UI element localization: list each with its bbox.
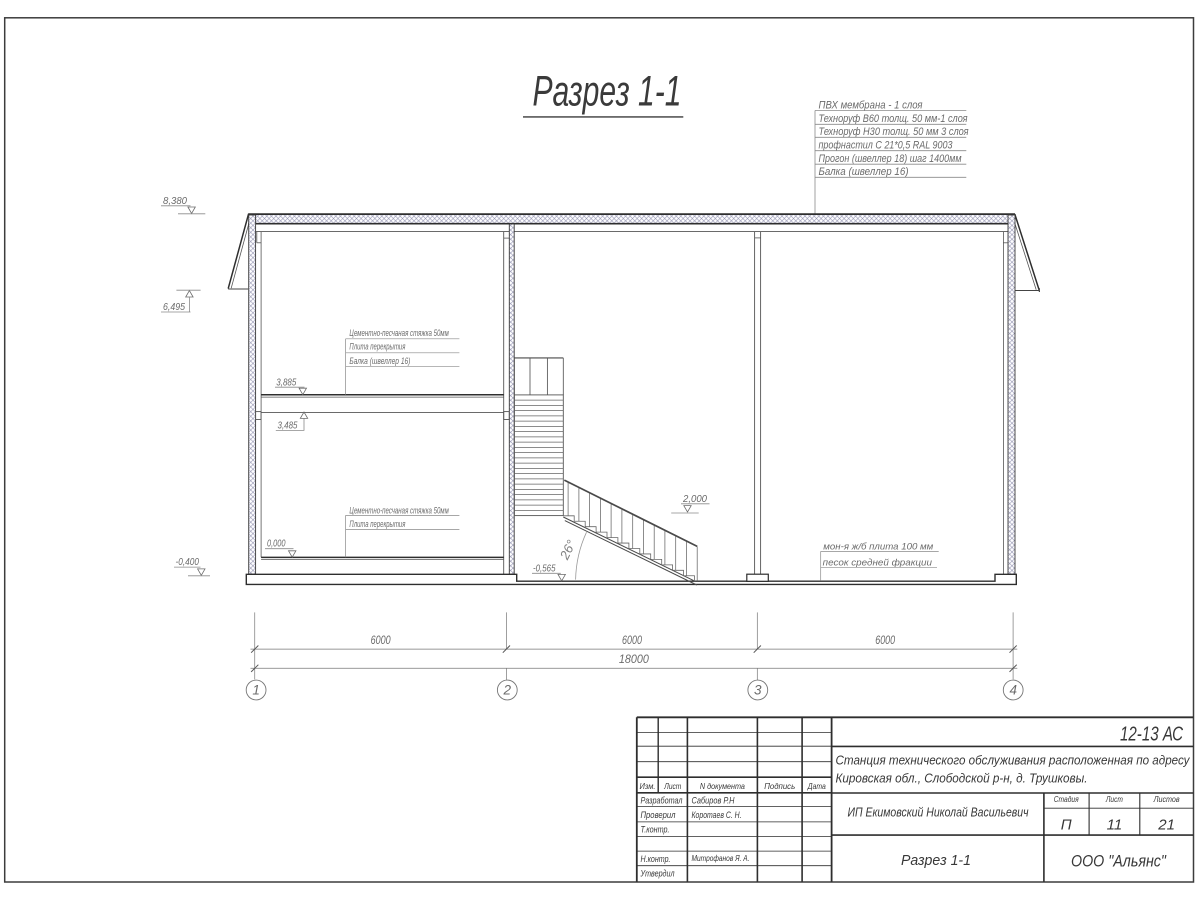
svg-text:Балка (швеллер 16): Балка (швеллер 16) [349,356,410,367]
svg-text:Цементно-песчаная стяжка 50мм: Цементно-песчаная стяжка 50мм [349,328,449,339]
svg-text:-0,400: -0,400 [176,556,200,568]
svg-text:Коротаев С. Н.: Коротаев С. Н. [692,810,742,820]
svg-text:профнастил С 21*0,5 RAL 9003: профнастил С 21*0,5 RAL 9003 [819,140,953,152]
svg-text:Лист: Лист [664,781,682,791]
svg-text:21: 21 [1157,817,1175,834]
svg-text:3: 3 [754,683,762,698]
svg-text:2,000: 2,000 [682,493,707,505]
svg-text:Дата: Дата [807,781,826,791]
svg-text:Утвердил: Утвердил [640,869,675,879]
svg-text:2: 2 [503,683,512,698]
svg-text:Плита перекрытия: Плита перекрытия [349,519,405,530]
svg-text:12-13 АС: 12-13 АС [1120,724,1183,746]
svg-text:0,000: 0,000 [267,538,286,550]
svg-text:Стадия: Стадия [1054,794,1079,804]
svg-text:N документа: N документа [700,781,745,791]
svg-text:Техноруф Н30 толщ. 50 мм 3 сло: Техноруф Н30 толщ. 50 мм 3 слоя [819,126,969,138]
svg-text:мон-я ж/б плита 100 мм: мон-я ж/б плита 100 мм [823,542,933,553]
svg-text:4: 4 [1009,683,1017,698]
svg-text:6000: 6000 [875,635,895,647]
svg-text:Разрез 1-1: Разрез 1-1 [533,68,682,116]
svg-text:Станция технического обслужива: Станция технического обслуживания распол… [836,753,1191,768]
svg-text:ПВХ мембрана - 1 слоя: ПВХ мембрана - 1 слоя [819,99,923,111]
svg-text:Митрофанов Я. А.: Митрофанов Я. А. [692,853,750,863]
svg-text:П: П [1061,817,1072,834]
svg-text:Изм.: Изм. [640,781,656,791]
svg-text:Кировская обл., Слободской р-н: Кировская обл., Слободской р-н, д. Трушк… [836,770,1088,785]
svg-text:песок средней фракции: песок средней фракции [823,557,933,568]
svg-text:6000: 6000 [371,635,391,647]
svg-text:3,485: 3,485 [278,419,298,431]
svg-text:8,380: 8,380 [163,195,187,207]
svg-text:Цементно-песчаная стяжка 50мм: Цементно-песчаная стяжка 50мм [349,505,449,516]
svg-text:Разрез 1-1: Разрез 1-1 [901,852,971,869]
svg-text:Лист: Лист [1105,794,1123,804]
svg-text:11: 11 [1107,817,1123,834]
svg-text:-0,565: -0,565 [533,563,556,575]
svg-text:Сабиров Р.Н: Сабиров Р.Н [692,795,736,805]
svg-text:Плита перекрытия: Плита перекрытия [349,341,405,352]
svg-text:Проверил: Проверил [641,810,676,820]
svg-text:Техноруф В60 толщ. 50 мм-1 сло: Техноруф В60 толщ. 50 мм-1 слоя [819,113,968,125]
svg-text:Прогон (швеллер 18) шаг 1400мм: Прогон (швеллер 18) шаг 1400мм [819,153,963,165]
svg-text:Разработал: Разработал [641,795,683,805]
svg-text:18000: 18000 [619,654,650,666]
svg-text:ИП Екимовский Николай Васильев: ИП Екимовский Николай Васильевич [848,806,1029,820]
svg-text:Т.контр.: Т.контр. [641,824,670,834]
svg-text:1: 1 [252,683,260,698]
svg-text:6,495: 6,495 [163,301,185,313]
svg-text:Н.контр.: Н.контр. [641,854,671,864]
svg-text:3,885: 3,885 [276,376,296,388]
svg-text:Балка (швеллер 16): Балка (швеллер 16) [819,166,909,178]
svg-text:ООО "Альянс": ООО "Альянс" [1071,852,1167,871]
svg-text:Листов: Листов [1153,794,1180,804]
svg-text:Подпись: Подпись [764,781,795,791]
svg-text:6000: 6000 [622,635,642,647]
